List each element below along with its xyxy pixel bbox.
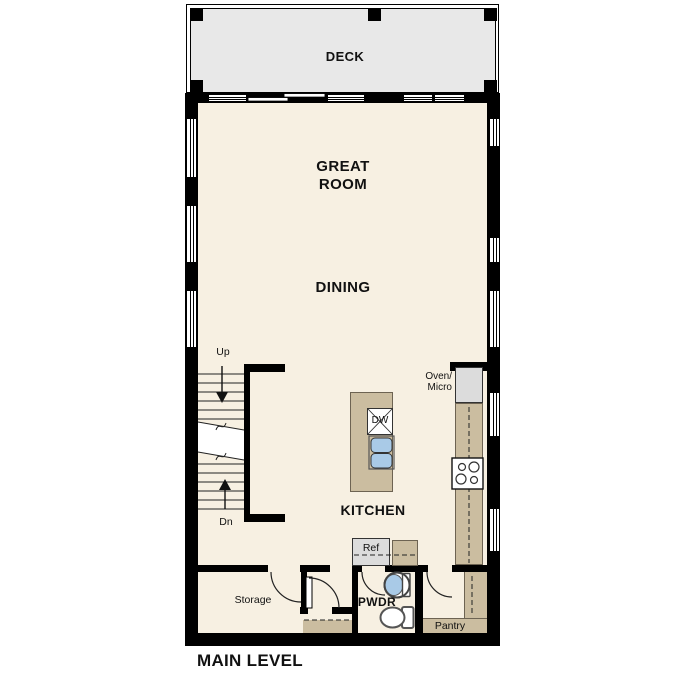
deck-post (484, 8, 497, 21)
oven-micro-cabinet (455, 367, 483, 403)
window (208, 94, 247, 102)
storage-label: Storage (223, 595, 283, 606)
wall-stairs-stub-bottom (244, 514, 285, 522)
stairs-down-label: Dn (212, 517, 240, 528)
wall-powder-top-left (352, 565, 362, 572)
window (489, 118, 500, 147)
wall-entry-stub-left (300, 607, 308, 614)
oven-micro-label: Oven/ Micro (408, 371, 452, 393)
window (186, 290, 197, 348)
wall-exterior-left (185, 103, 198, 646)
powder-label: PWDR (352, 593, 402, 611)
deck-post (190, 80, 203, 93)
kitchen-label: KITCHEN (333, 501, 413, 519)
wall-stairs-right (244, 364, 250, 522)
great-room-label-line1: GREAT (303, 158, 383, 176)
dining-label: DINING (303, 279, 383, 297)
window (489, 392, 500, 437)
deck-post (484, 80, 497, 93)
wall-powder-pantry-vert (415, 565, 423, 635)
wall-storage-top (198, 565, 268, 572)
plan-title: MAIN LEVEL (197, 651, 303, 671)
floor-plan: DECK GREAT ROOM DINING KITCHEN PWDR Stor… (0, 0, 687, 687)
pantry-label: Pantry (425, 621, 475, 632)
wall-exterior-bottom (185, 633, 500, 646)
window-mullion (432, 93, 435, 103)
oven-micro-label-line1: Oven/ (408, 371, 452, 382)
window (186, 118, 197, 178)
stairs-up-label: Up (210, 347, 236, 358)
wall-exterior-right (487, 103, 500, 646)
kitchen-counter (455, 403, 483, 565)
kitchen-island (350, 392, 393, 492)
window (327, 94, 365, 102)
ref-label: Ref (352, 543, 390, 554)
pantry-shelf-column (464, 572, 487, 620)
deck-post (190, 8, 203, 21)
ref-side-cabinet (392, 540, 418, 566)
oven-micro-label-line2: Micro (408, 382, 452, 393)
deck-label: DECK (305, 48, 385, 66)
window (489, 237, 500, 263)
entry-porch (303, 620, 352, 633)
wall-stairs-stub-top (244, 364, 285, 372)
great-room-label-line2: ROOM (303, 176, 383, 194)
window (186, 205, 197, 263)
dishwasher-label: DW (367, 415, 393, 426)
great-room-label: GREAT ROOM (303, 158, 383, 194)
wall-pantry-top (452, 565, 487, 572)
window (489, 290, 500, 348)
window (489, 508, 500, 552)
deck-post (368, 8, 381, 21)
